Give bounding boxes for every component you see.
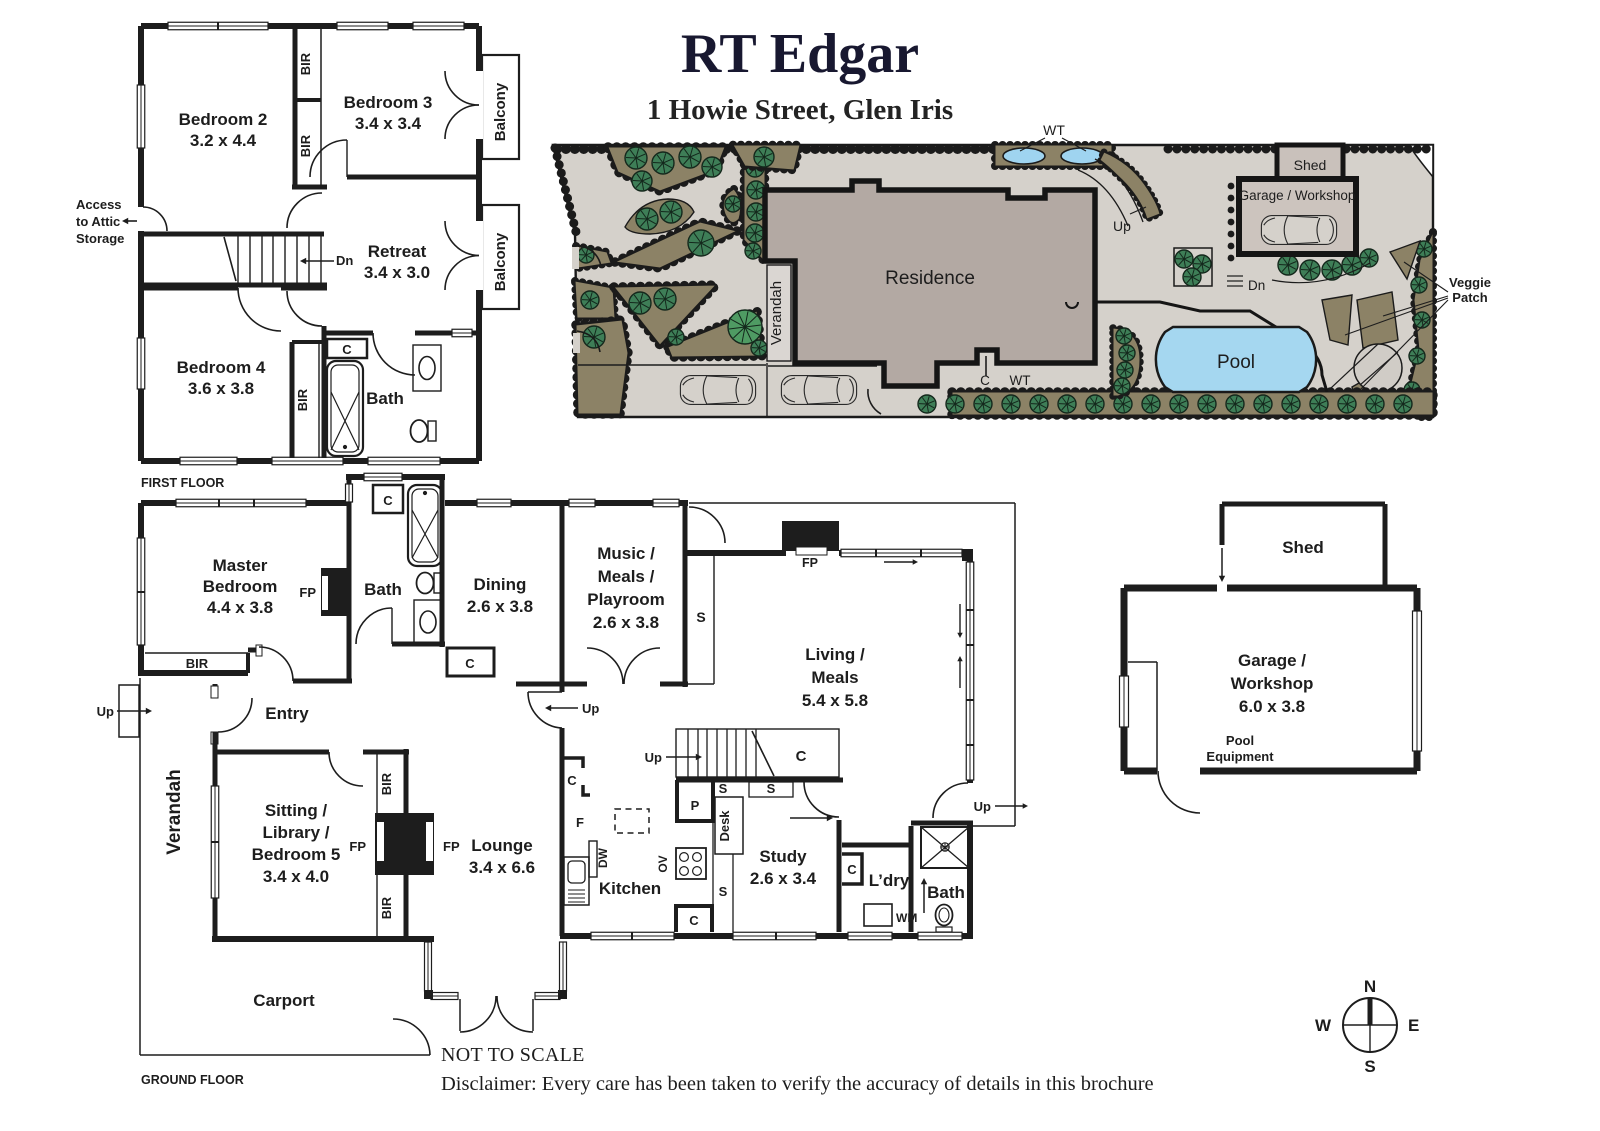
svg-text:Veggie: Veggie (1449, 275, 1491, 290)
svg-text:Kitchen: Kitchen (599, 879, 661, 898)
svg-text:6.0 x 3.8: 6.0 x 3.8 (1239, 697, 1305, 716)
svg-text:Up: Up (97, 704, 114, 719)
svg-text:BIR: BIR (379, 896, 394, 919)
svg-text:Workshop: Workshop (1231, 674, 1314, 693)
svg-text:Desk: Desk (717, 810, 732, 842)
svg-text:NOT TO SCALE: NOT TO SCALE (441, 1044, 585, 1066)
svg-text:2.6 x 3.8: 2.6 x 3.8 (593, 613, 659, 632)
svg-text:S: S (696, 609, 705, 625)
svg-text:Verandah: Verandah (768, 281, 785, 345)
svg-text:Residence: Residence (885, 268, 975, 289)
svg-text:S: S (719, 781, 728, 796)
svg-text:Study: Study (759, 847, 807, 866)
svg-text:WT: WT (1010, 373, 1031, 388)
svg-text:Storage: Storage (76, 231, 124, 246)
svg-text:S: S (767, 781, 776, 796)
svg-text:E: E (1408, 1016, 1419, 1035)
svg-text:Bedroom 2: Bedroom 2 (179, 110, 268, 129)
svg-text:2.6 x 3.4: 2.6 x 3.4 (750, 869, 817, 888)
svg-text:Meals /: Meals / (598, 567, 655, 586)
svg-text:Bedroom 5: Bedroom 5 (252, 845, 341, 864)
svg-text:BIR: BIR (298, 52, 313, 75)
svg-text:GROUND FLOOR: GROUND FLOOR (141, 1073, 244, 1087)
svg-text:C: C (465, 656, 475, 671)
svg-text:Bedroom: Bedroom (203, 577, 278, 596)
svg-text:Library /: Library / (262, 823, 329, 842)
svg-text:Bedroom 4: Bedroom 4 (177, 358, 266, 377)
svg-text:Access: Access (76, 197, 122, 212)
svg-text:4.4 x 3.8: 4.4 x 3.8 (207, 598, 273, 617)
svg-text:Equipment: Equipment (1206, 749, 1274, 764)
svg-text:Disclaimer: Every care has bee: Disclaimer: Every care has been taken to… (441, 1073, 1154, 1095)
svg-text:C: C (383, 493, 393, 508)
svg-text:Balcony: Balcony (492, 232, 509, 291)
svg-text:C: C (689, 913, 699, 928)
svg-text:Retreat: Retreat (368, 242, 427, 261)
svg-text:Up: Up (645, 750, 662, 765)
svg-text:C: C (980, 373, 990, 388)
svg-text:3.2 x 4.4: 3.2 x 4.4 (190, 131, 257, 150)
svg-text:C: C (342, 342, 352, 357)
svg-text:FP: FP (299, 585, 316, 600)
svg-text:Pool: Pool (1226, 733, 1254, 748)
svg-text:3.4 x 3.0: 3.4 x 3.0 (364, 263, 430, 282)
svg-text:Up: Up (1113, 218, 1131, 234)
svg-text:Up: Up (974, 799, 991, 814)
svg-text:Bath: Bath (364, 580, 402, 599)
svg-text:FP: FP (443, 839, 460, 854)
svg-text:to Attic: to Attic (76, 214, 120, 229)
svg-text:W: W (1315, 1016, 1332, 1035)
svg-text:1 Howie Street, Glen Iris: 1 Howie Street, Glen Iris (647, 94, 953, 126)
svg-text:L’dry: L’dry (869, 871, 910, 890)
svg-text:WT: WT (1043, 122, 1065, 138)
svg-text:Balcony: Balcony (492, 82, 509, 141)
svg-text:Living /: Living / (805, 645, 865, 664)
svg-text:FIRST FLOOR: FIRST FLOOR (141, 476, 224, 490)
svg-text:2.6 x 3.8: 2.6 x 3.8 (467, 597, 533, 616)
svg-text:N: N (1364, 977, 1376, 996)
svg-text:Shed: Shed (1294, 157, 1327, 173)
svg-text:Pool: Pool (1217, 352, 1255, 373)
svg-text:OV: OV (656, 855, 670, 872)
svg-text:Garage /: Garage / (1238, 651, 1306, 670)
svg-text:Sitting /: Sitting / (265, 801, 328, 820)
svg-text:Meals: Meals (811, 668, 858, 687)
svg-text:Patch: Patch (1452, 290, 1487, 305)
svg-text:FP: FP (802, 556, 818, 570)
svg-text:3.4 x 3.4: 3.4 x 3.4 (355, 114, 422, 133)
svg-text:3.4 x 6.6: 3.4 x 6.6 (469, 858, 535, 877)
svg-text:Garage / Workshop: Garage / Workshop (1239, 188, 1356, 203)
svg-text:3.4 x 4.0: 3.4 x 4.0 (263, 867, 329, 886)
svg-text:Music /: Music / (597, 544, 655, 563)
svg-text:Dining: Dining (474, 575, 527, 594)
svg-text:Shed: Shed (1282, 538, 1324, 557)
svg-text:Verandah: Verandah (164, 769, 185, 855)
svg-text:Master: Master (213, 556, 268, 575)
svg-text:BIR: BIR (295, 388, 310, 411)
svg-text:Playroom: Playroom (587, 590, 664, 609)
svg-text:5.4 x 5.8: 5.4 x 5.8 (802, 691, 868, 710)
svg-text:3.6 x 3.8: 3.6 x 3.8 (188, 379, 254, 398)
svg-text:Lounge: Lounge (471, 836, 532, 855)
svg-text:C: C (796, 748, 807, 765)
svg-text:C: C (847, 862, 857, 877)
svg-text:P: P (691, 798, 700, 813)
svg-text:DW: DW (596, 847, 610, 868)
svg-text:Dn: Dn (1248, 278, 1265, 293)
svg-text:WM: WM (896, 911, 917, 925)
svg-text:Bath: Bath (366, 389, 404, 408)
svg-text:BIR: BIR (186, 656, 209, 671)
svg-text:Dn: Dn (336, 253, 353, 268)
svg-text:C: C (567, 773, 577, 788)
svg-text:BIR: BIR (379, 772, 394, 795)
svg-text:Entry: Entry (265, 704, 309, 723)
svg-text:BIR: BIR (298, 134, 313, 157)
svg-text:FP: FP (349, 839, 366, 854)
svg-text:Bath: Bath (927, 883, 965, 902)
svg-text:S: S (719, 884, 728, 899)
svg-text:Up: Up (582, 701, 599, 716)
svg-text:F: F (576, 815, 584, 830)
svg-text:Bedroom 3: Bedroom 3 (344, 93, 433, 112)
svg-text:S: S (1364, 1057, 1375, 1076)
svg-text:Carport: Carport (253, 991, 315, 1010)
svg-text:RT Edgar: RT Edgar (681, 23, 919, 85)
